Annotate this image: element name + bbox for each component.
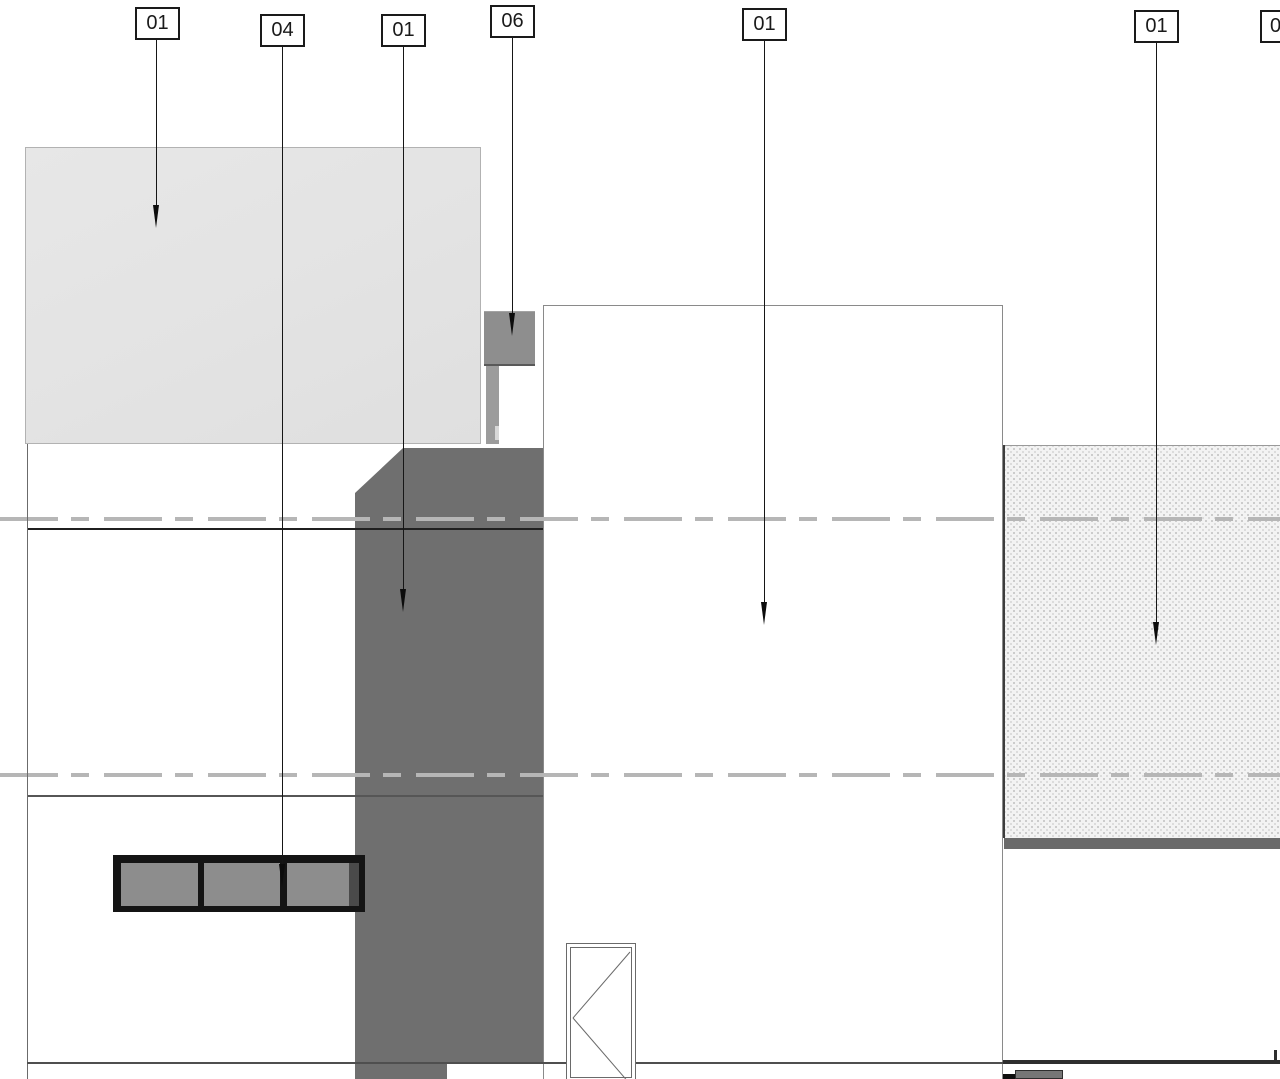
callout-leader-line bbox=[764, 41, 765, 602]
callout-tag: 06 bbox=[490, 5, 535, 38]
callout-arrowhead bbox=[153, 205, 159, 228]
callout-arrowhead bbox=[761, 602, 767, 625]
callout-tag: 01 bbox=[381, 14, 426, 47]
callout-layer: 0104010601010 bbox=[0, 0, 1280, 1079]
callout-leader-line bbox=[156, 40, 157, 205]
callout-leader-line bbox=[282, 47, 283, 864]
callout-leader-line bbox=[1156, 43, 1157, 622]
drawing-canvas: 0104010601010 bbox=[0, 0, 1280, 1079]
callout-leader-line bbox=[403, 47, 404, 589]
callout-arrowhead bbox=[1153, 622, 1159, 645]
callout-tag: 0 bbox=[1260, 10, 1280, 43]
callout-tag: 04 bbox=[260, 14, 305, 47]
callout-arrowhead bbox=[279, 864, 285, 887]
callout-arrowhead bbox=[400, 589, 406, 612]
callout-leader-line bbox=[512, 38, 513, 313]
callout-tag: 01 bbox=[135, 7, 180, 40]
callout-tag: 01 bbox=[742, 8, 787, 41]
callout-arrowhead bbox=[509, 313, 515, 336]
callout-tag: 01 bbox=[1134, 10, 1179, 43]
